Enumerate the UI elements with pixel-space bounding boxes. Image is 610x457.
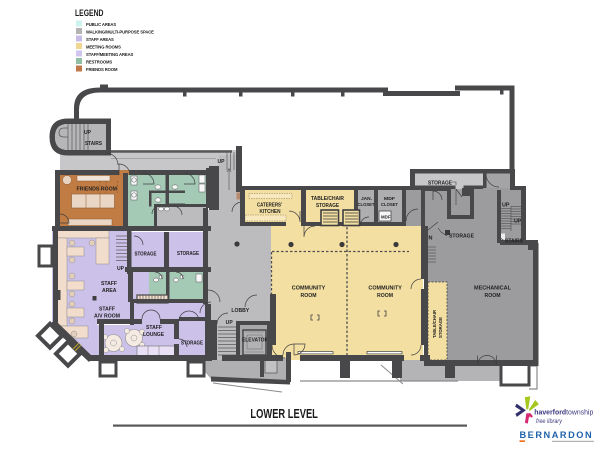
svg-text:STORAGE: STORAGE bbox=[135, 252, 157, 258]
svg-text:UP: UP bbox=[117, 266, 125, 272]
svg-text:ROOM: ROOM bbox=[301, 293, 317, 299]
svg-text:STORAGE: STORAGE bbox=[438, 316, 444, 338]
svg-text:COMMUNITY: COMMUNITY bbox=[368, 286, 402, 292]
svg-text:JAN.: JAN. bbox=[361, 196, 372, 202]
svg-text:COMMUNITY: COMMUNITY bbox=[292, 286, 326, 292]
svg-text:CLOSET: CLOSET bbox=[381, 202, 398, 208]
svg-text:UP: UP bbox=[226, 320, 234, 326]
svg-text:UP: UP bbox=[218, 159, 226, 165]
svg-text:FRIENDS ROOM: FRIENDS ROOM bbox=[77, 187, 118, 193]
svg-text:UP: UP bbox=[84, 130, 92, 136]
svg-text:LEGEND: LEGEND bbox=[75, 8, 104, 19]
svg-text:MECHANICAL: MECHANICAL bbox=[474, 286, 511, 292]
svg-text:STAIRS: STAIRS bbox=[85, 141, 103, 147]
svg-text:TABLE/CHAIR: TABLE/CHAIR bbox=[311, 196, 344, 202]
svg-text:BERNARDON: BERNARDON bbox=[520, 430, 594, 440]
svg-text:MDF: MDF bbox=[381, 215, 391, 220]
svg-text:UP: UP bbox=[514, 219, 522, 225]
svg-text:LOUNGE: LOUNGE bbox=[143, 332, 164, 338]
svg-text:LOBBY: LOBBY bbox=[231, 308, 249, 314]
svg-text:STAIRS: STAIRS bbox=[505, 239, 524, 245]
svg-text:STORAGE: STORAGE bbox=[177, 251, 199, 257]
svg-text:STAFF/MEETING AREAS: STAFF/MEETING AREAS bbox=[86, 52, 133, 57]
svg-text:free library: free library bbox=[536, 418, 563, 425]
svg-text:LOWER LEVEL: LOWER LEVEL bbox=[250, 406, 318, 421]
svg-text:MEETING ROOMS: MEETING ROOMS bbox=[86, 45, 121, 50]
svg-text:STORAGE: STORAGE bbox=[316, 203, 339, 209]
svg-text:STAFF: STAFF bbox=[99, 307, 116, 313]
svg-text:STORAGE: STORAGE bbox=[449, 234, 474, 240]
svg-text:ELEVATOR: ELEVATOR bbox=[242, 338, 268, 344]
svg-text:CATERERS': CATERERS' bbox=[257, 203, 282, 209]
svg-text:AREA: AREA bbox=[102, 288, 117, 294]
svg-text:FRIENDS ROOM: FRIENDS ROOM bbox=[86, 67, 118, 72]
svg-text:CLOSET: CLOSET bbox=[358, 202, 375, 208]
svg-text:PUBLIC AREAS: PUBLIC AREAS bbox=[86, 22, 116, 27]
svg-text:KITCHEN: KITCHEN bbox=[260, 209, 281, 215]
svg-text:TABLE/CHAIR: TABLE/CHAIR bbox=[432, 310, 438, 338]
svg-text:WALKING/MULTI-PURPOSE SPACE: WALKING/MULTI-PURPOSE SPACE bbox=[86, 30, 154, 35]
svg-text:haverfordtownship: haverfordtownship bbox=[534, 410, 593, 417]
svg-text:STAFF: STAFF bbox=[146, 325, 163, 331]
svg-text:MDF: MDF bbox=[384, 196, 395, 202]
svg-text:UP: UP bbox=[502, 203, 510, 209]
svg-text:ROOM: ROOM bbox=[485, 293, 501, 299]
svg-text:A/V ROOM: A/V ROOM bbox=[94, 314, 120, 320]
svg-text:STAFF AREAS: STAFF AREAS bbox=[86, 37, 114, 42]
svg-text:ROOM: ROOM bbox=[377, 293, 393, 299]
svg-text:STAFF: STAFF bbox=[101, 281, 118, 287]
svg-text:RESTROOMS: RESTROOMS bbox=[86, 60, 112, 65]
